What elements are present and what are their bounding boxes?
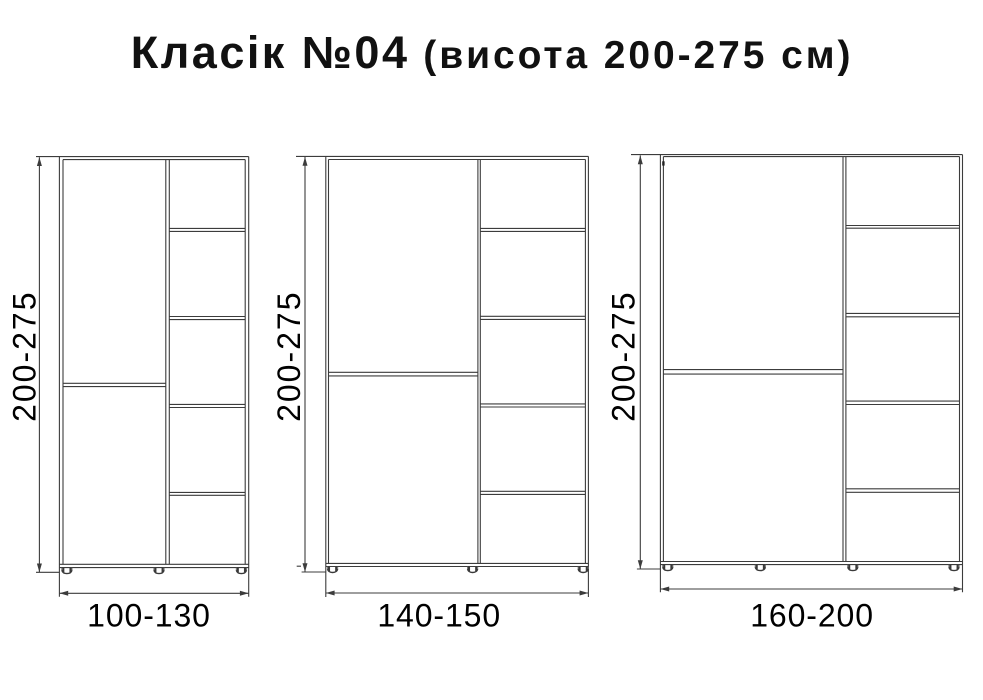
svg-text:(висота 200-275 см): (висота 200-275 см) [423, 34, 853, 77]
svg-text:200-275: 200-275 [271, 290, 307, 421]
svg-text:200-275: 200-275 [606, 290, 642, 421]
svg-text:160-200: 160-200 [750, 597, 874, 633]
svg-text:100-130: 100-130 [87, 597, 211, 633]
svg-text:200-275: 200-275 [6, 290, 42, 421]
svg-text:140-150: 140-150 [377, 597, 501, 633]
svg-text:Класік №04: Класік №04 [131, 27, 410, 78]
